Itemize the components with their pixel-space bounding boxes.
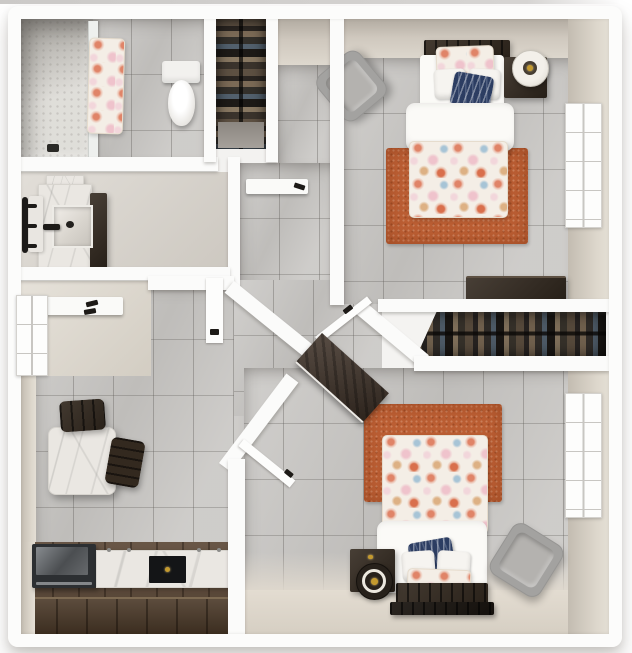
armchair-cushion: [497, 530, 557, 590]
bedroom2-drum-lamp: [356, 563, 393, 600]
wall-wardrobe-north: [378, 299, 609, 312]
wardrobe-hanging-clothes: [414, 311, 606, 362]
lamp-gold-finial: [527, 65, 533, 71]
hall-door-open: [206, 278, 223, 343]
bedroom1-floral-comforter: [409, 141, 508, 218]
wall-soffit: [278, 19, 330, 65]
counter-knob: [127, 548, 131, 552]
lamp-gold-finial: [371, 578, 378, 585]
wall-bedroom1-west: [330, 12, 344, 305]
counter-knob: [197, 548, 201, 552]
bedroom2-foot-bench: [390, 602, 494, 615]
floral-shower-curtain: [87, 38, 126, 135]
walk-in-shower: [19, 19, 93, 159]
left-wall-window: [16, 295, 48, 376]
kitchen-dark-appliance: [32, 544, 96, 588]
kitchen-marble-counter: [96, 550, 232, 588]
kitchen-counter-front: [26, 597, 230, 636]
towel-rack-peg: [27, 204, 37, 208]
black-faucet: [43, 224, 60, 230]
bedroom2-floral-comforter: [382, 435, 488, 534]
wall-wardrobe-south: [414, 356, 609, 371]
cooktop-emblem: [165, 567, 170, 572]
bedroom1-drum-lamp: [512, 50, 549, 87]
hall-closet-shoe-shelf: [218, 122, 264, 148]
counter-knob: [107, 548, 111, 552]
counter-knob: [217, 548, 221, 552]
dining-chair: [59, 398, 106, 432]
image-top-edge-strip: [0, 0, 620, 4]
towel-rack-peg: [27, 244, 37, 248]
shower-drain: [47, 144, 59, 152]
towel-rack-peg: [27, 224, 37, 228]
bedroom2-window: [565, 393, 602, 518]
floor-plan-render: [0, 0, 632, 653]
sink-drain: [66, 221, 74, 228]
toilet-bowl: [168, 80, 195, 126]
appliance-glass-top: [36, 547, 88, 575]
wall-bedroom2-west: [228, 459, 245, 635]
bedroom1-window: [565, 103, 602, 228]
wall-bathroom-south: [12, 157, 218, 171]
wall-bathroom-east: [204, 12, 216, 162]
door-handle: [210, 329, 219, 335]
nightstand-gold-handle: [368, 555, 373, 559]
appliance-handle: [36, 582, 92, 585]
wall-hall-closet-east: [266, 12, 278, 162]
marble-dining-table: [48, 427, 116, 495]
